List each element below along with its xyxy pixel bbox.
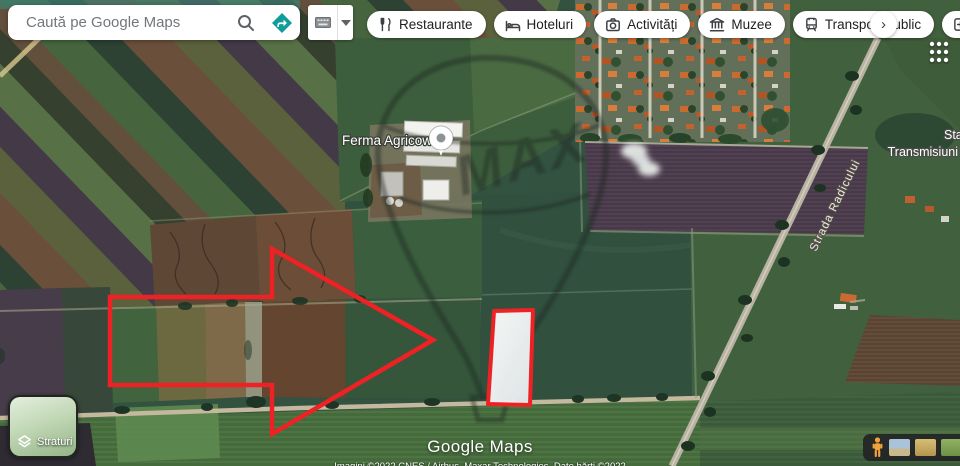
search-button[interactable] xyxy=(228,5,264,40)
restaurants-icon xyxy=(378,17,393,32)
area-label-line2: Transmisiuni xyxy=(888,145,958,159)
chip-hotels[interactable]: Hoteluri xyxy=(494,11,587,38)
chip-museums[interactable]: Muzee xyxy=(698,11,785,38)
chevron-right-icon: › xyxy=(881,16,886,33)
chip-transit[interactable]: Transport public xyxy=(793,11,934,38)
caret-down-icon xyxy=(341,20,351,26)
chip-activities[interactable]: Activități xyxy=(594,11,690,38)
directions-button[interactable] xyxy=(264,5,300,40)
parcel-highlight xyxy=(488,310,533,405)
input-tools-button[interactable] xyxy=(308,5,353,40)
chip-label: Restaurante xyxy=(399,17,473,32)
area-label-line1: Sta xyxy=(944,128,960,142)
keyboard-icon xyxy=(315,17,331,28)
layers-icon xyxy=(17,434,32,449)
chip-restaurants[interactable]: Restaurante xyxy=(367,11,486,38)
museums-icon xyxy=(709,17,725,33)
layers-button[interactable]: Straturi xyxy=(8,395,78,458)
imagery-thumbnail-3[interactable] xyxy=(941,439,960,456)
pegman-bar xyxy=(863,434,960,461)
pharmacy-icon xyxy=(953,17,960,32)
chip-label: Activități xyxy=(627,17,677,32)
google-maps-logo: Google Maps xyxy=(0,437,960,457)
pegman-icon[interactable] xyxy=(871,437,884,458)
chip-pharmacies[interactable]: Farm xyxy=(942,11,960,38)
search-bar xyxy=(8,5,300,40)
imagery-thumbnail-1[interactable] xyxy=(889,439,910,456)
chips-scroll-button[interactable]: › xyxy=(870,11,897,38)
chip-label: Hoteluri xyxy=(527,17,574,32)
grid-menu-button[interactable] xyxy=(928,40,950,67)
imagery-thumbnail-2[interactable] xyxy=(915,439,936,456)
poi-label: Ferma Agricow xyxy=(342,133,432,148)
grid-menu-icon xyxy=(928,40,950,64)
activities-icon xyxy=(605,17,621,33)
chip-label: Muzee xyxy=(731,17,772,32)
satellite-map[interactable]: MAX Ferma Agricow Strada Radicului Sta T… xyxy=(0,0,960,466)
search-icon xyxy=(236,13,256,33)
layers-label: Straturi xyxy=(37,436,72,448)
search-input[interactable] xyxy=(24,13,228,32)
hotels-icon xyxy=(505,17,521,33)
attribution-text: Imagini ©2022 CNES / Airbus, Maxar Techn… xyxy=(0,461,960,466)
google-maps-window: MAX Ferma Agricow Strada Radicului Sta T… xyxy=(0,0,960,466)
transit-icon xyxy=(804,17,819,32)
